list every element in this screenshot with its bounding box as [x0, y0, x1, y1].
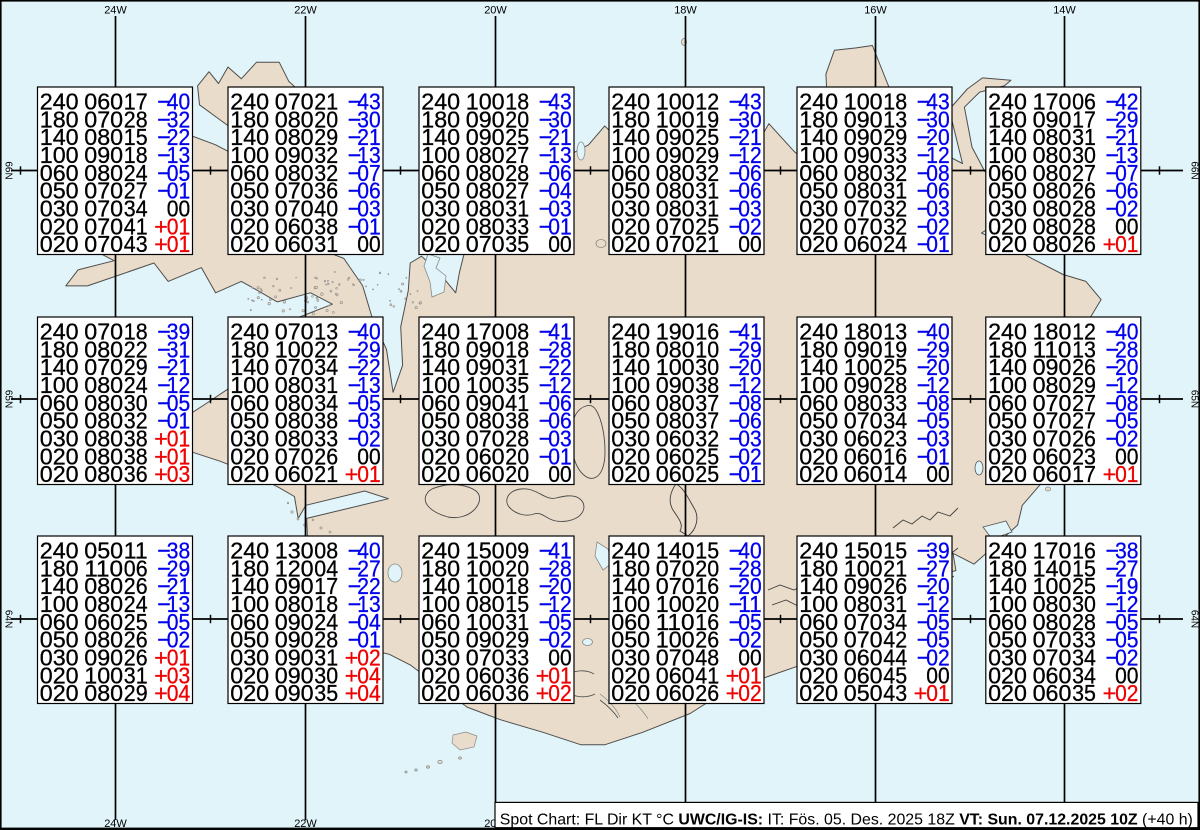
svg-text:020: 020: [611, 680, 650, 706]
svg-text:020: 020: [799, 231, 838, 257]
svg-text:01: 01: [167, 231, 190, 257]
svg-text:26: 26: [1072, 231, 1096, 257]
svg-text:020: 020: [799, 680, 838, 706]
svg-text:26: 26: [695, 680, 719, 706]
svg-text:01: 01: [1115, 231, 1138, 257]
svg-text:00: 00: [548, 231, 571, 257]
svg-text:16W: 16W: [864, 5, 887, 17]
svg-text:01: 01: [738, 461, 761, 487]
svg-text:43: 43: [883, 680, 907, 706]
svg-text:01: 01: [926, 231, 949, 257]
svg-text:020: 020: [230, 231, 269, 257]
svg-text:31: 31: [314, 231, 338, 257]
svg-text:22W: 22W: [294, 5, 317, 17]
svg-text:070: 070: [84, 231, 123, 257]
svg-text:00: 00: [926, 461, 949, 487]
svg-text:020: 020: [988, 461, 1027, 487]
svg-text:35: 35: [314, 680, 338, 706]
svg-text:00: 00: [357, 231, 380, 257]
svg-text:020: 020: [230, 680, 269, 706]
svg-text:060: 060: [466, 461, 505, 487]
svg-text:020: 020: [988, 231, 1027, 257]
svg-text:17: 17: [1072, 461, 1096, 487]
svg-text:050: 050: [844, 680, 883, 706]
svg-text:080: 080: [84, 680, 123, 706]
svg-text:020: 020: [988, 680, 1027, 706]
svg-text:080: 080: [1033, 231, 1072, 257]
svg-text:020: 020: [40, 680, 79, 706]
svg-text:36: 36: [124, 461, 148, 487]
svg-text:060: 060: [275, 231, 314, 257]
svg-text:060: 060: [844, 461, 883, 487]
svg-text:66N: 66N: [1189, 161, 1200, 179]
svg-text:060: 060: [1033, 680, 1072, 706]
svg-text:21: 21: [695, 231, 719, 257]
svg-text:020: 020: [421, 680, 460, 706]
svg-text:060: 060: [656, 461, 695, 487]
svg-text:01: 01: [1115, 461, 1138, 487]
svg-text:14W: 14W: [1053, 5, 1076, 17]
svg-text:020: 020: [421, 231, 460, 257]
svg-text:020: 020: [40, 231, 79, 257]
svg-text:070: 070: [466, 231, 505, 257]
svg-text:060: 060: [1033, 461, 1072, 487]
svg-text:66N: 66N: [3, 161, 14, 179]
svg-text:02: 02: [1115, 680, 1138, 706]
svg-text:080: 080: [84, 461, 123, 487]
svg-text:00: 00: [548, 461, 571, 487]
svg-text:00: 00: [738, 231, 761, 257]
svg-text:060: 060: [275, 461, 314, 487]
svg-text:43: 43: [124, 231, 148, 257]
svg-text:01: 01: [926, 680, 949, 706]
svg-text:020: 020: [799, 461, 838, 487]
svg-text:35: 35: [1072, 680, 1096, 706]
svg-text:36: 36: [505, 680, 529, 706]
svg-text:020: 020: [230, 461, 269, 487]
svg-text:04: 04: [357, 680, 380, 706]
svg-text:020: 020: [611, 231, 650, 257]
svg-text:04: 04: [167, 680, 190, 706]
svg-text:18W: 18W: [674, 5, 697, 17]
svg-text:020: 020: [40, 461, 79, 487]
svg-text:35: 35: [505, 231, 529, 257]
svg-text:64N: 64N: [3, 610, 14, 628]
svg-text:14: 14: [883, 461, 907, 487]
svg-text:65N: 65N: [1189, 390, 1200, 408]
svg-text:03: 03: [167, 461, 190, 487]
svg-text:21: 21: [314, 461, 338, 487]
svg-text:02: 02: [738, 680, 761, 706]
svg-text:01: 01: [357, 461, 380, 487]
svg-text:65N: 65N: [3, 390, 14, 408]
svg-text:090: 090: [275, 680, 314, 706]
svg-text:020: 020: [611, 461, 650, 487]
svg-text:070: 070: [656, 231, 695, 257]
svg-text:060: 060: [466, 680, 505, 706]
svg-text:29: 29: [124, 680, 148, 706]
svg-text:25: 25: [695, 461, 719, 487]
svg-text:24W: 24W: [104, 5, 127, 17]
svg-text:060: 060: [844, 231, 883, 257]
svg-text:64N: 64N: [1189, 610, 1200, 628]
svg-text:020: 020: [421, 461, 460, 487]
svg-text:Spot Chart: FL Dir KT °C UWC/I: Spot Chart: FL Dir KT °C UWC/IG-IS: IT: …: [500, 811, 1193, 828]
svg-text:02: 02: [548, 680, 571, 706]
svg-text:24: 24: [883, 231, 907, 257]
svg-text:20W: 20W: [484, 5, 507, 17]
svg-text:20: 20: [505, 461, 529, 487]
svg-text:060: 060: [656, 680, 695, 706]
